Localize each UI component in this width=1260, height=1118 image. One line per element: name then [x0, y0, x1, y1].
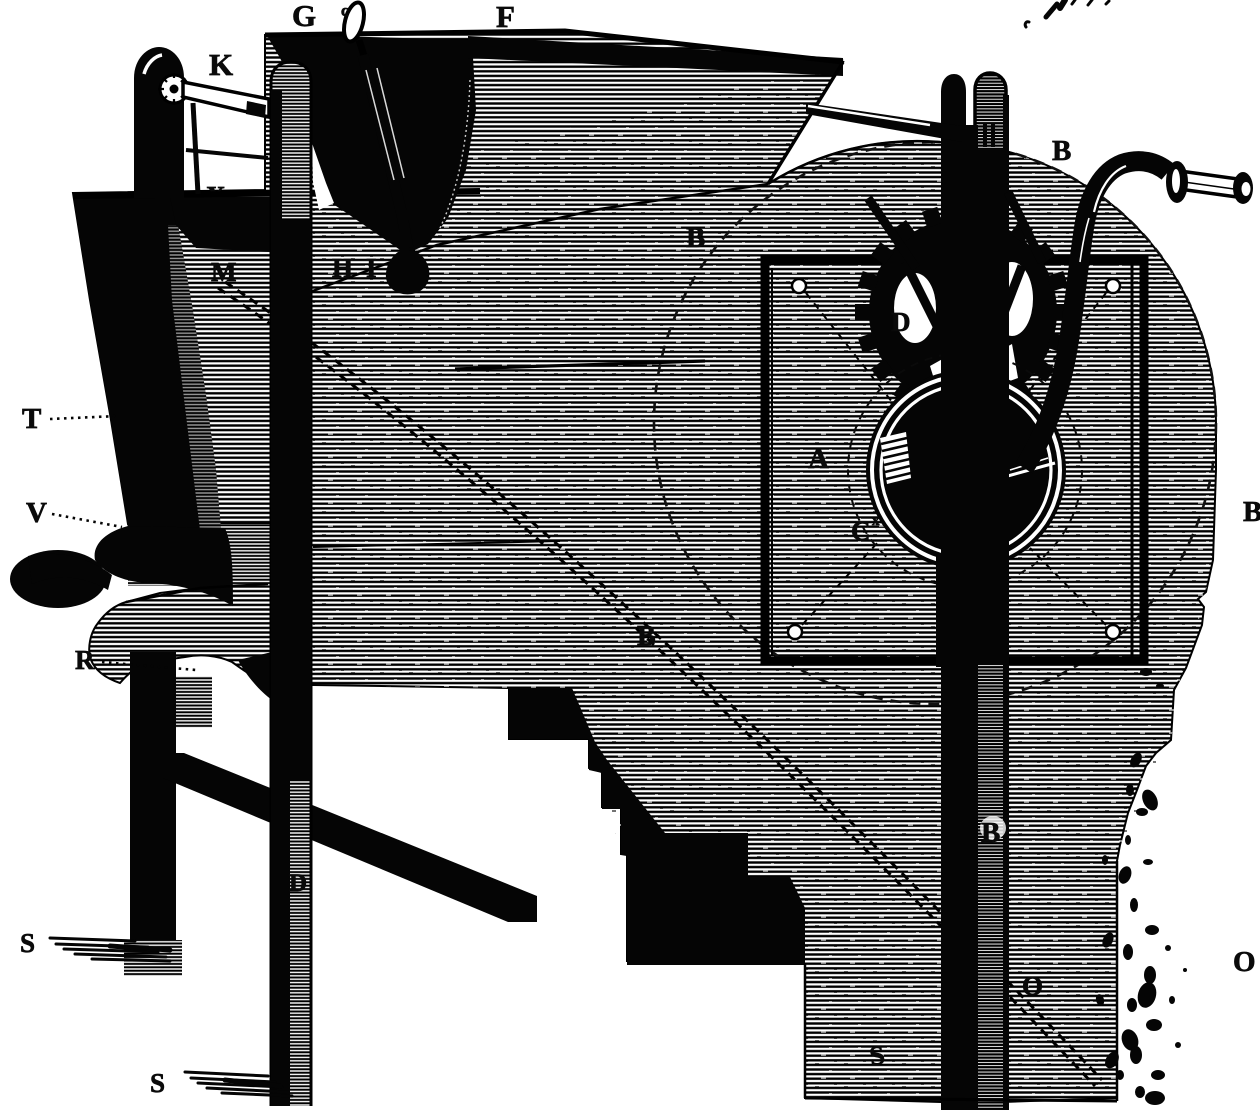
svg-text:K: K	[209, 47, 233, 82]
svg-text:A: A	[808, 443, 829, 475]
svg-text:D: D	[289, 870, 307, 897]
svg-text:S: S	[150, 1068, 165, 1098]
svg-text:T: T	[22, 403, 41, 435]
svg-text:B: B	[686, 222, 705, 254]
svg-text:H: H	[332, 253, 353, 283]
svg-text:c: c	[341, 1, 349, 20]
svg-text:x: x	[872, 513, 880, 529]
svg-text:F: F	[496, 0, 515, 34]
svg-text:D: D	[891, 307, 911, 337]
svg-text:B: B	[1052, 135, 1071, 167]
svg-text:B: B	[981, 817, 1000, 849]
svg-text:B: B	[1243, 496, 1260, 528]
svg-text:O: O	[1233, 946, 1256, 978]
svg-text:I: I	[366, 253, 377, 283]
svg-text:V: V	[26, 497, 47, 529]
svg-text:S: S	[20, 928, 35, 958]
svg-text:R: R	[75, 645, 95, 675]
svg-text:C: C	[851, 516, 871, 546]
svg-text:B: B	[637, 621, 656, 652]
svg-text:M: M	[211, 257, 236, 287]
svg-text:O: O	[1022, 971, 1043, 1001]
svg-text:G: G	[292, 0, 316, 33]
